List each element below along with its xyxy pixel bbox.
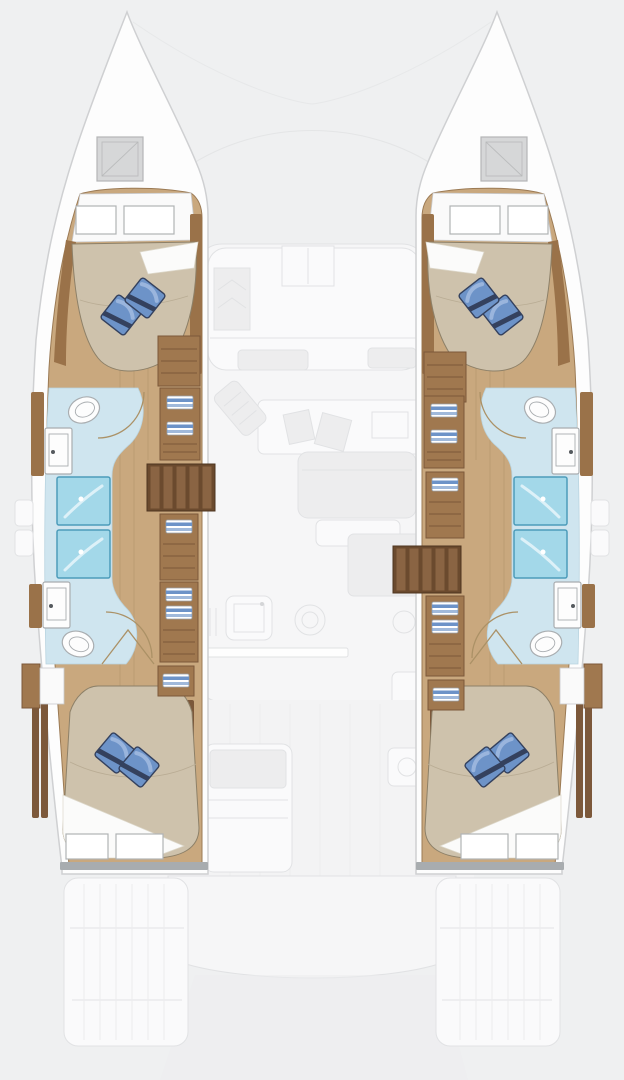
galley-counter	[196, 648, 348, 657]
storage-cabinet	[160, 388, 200, 460]
floorplan-svg	[0, 0, 624, 1080]
companionway-stairs	[147, 464, 215, 511]
dresser	[158, 336, 200, 386]
storage-cabinet	[160, 582, 198, 662]
storage-cabinet	[426, 596, 464, 676]
storage-cabinet	[426, 472, 464, 538]
storage-cabinet	[160, 514, 198, 580]
storage-cabinet	[428, 680, 464, 710]
galley-sink	[226, 596, 272, 640]
swim-platform	[168, 876, 456, 978]
forward-seat	[214, 268, 250, 330]
dresser	[424, 352, 466, 402]
catamaran-floorplan	[0, 0, 624, 1080]
saloon-sofa	[298, 452, 416, 518]
storage-cabinet	[158, 666, 194, 696]
storage-cabinet	[424, 396, 464, 468]
stern-steps-right	[436, 878, 560, 1046]
stern-steps-left	[64, 878, 188, 1046]
forward-cockpit	[208, 246, 420, 370]
companionway-stairs	[393, 546, 461, 593]
